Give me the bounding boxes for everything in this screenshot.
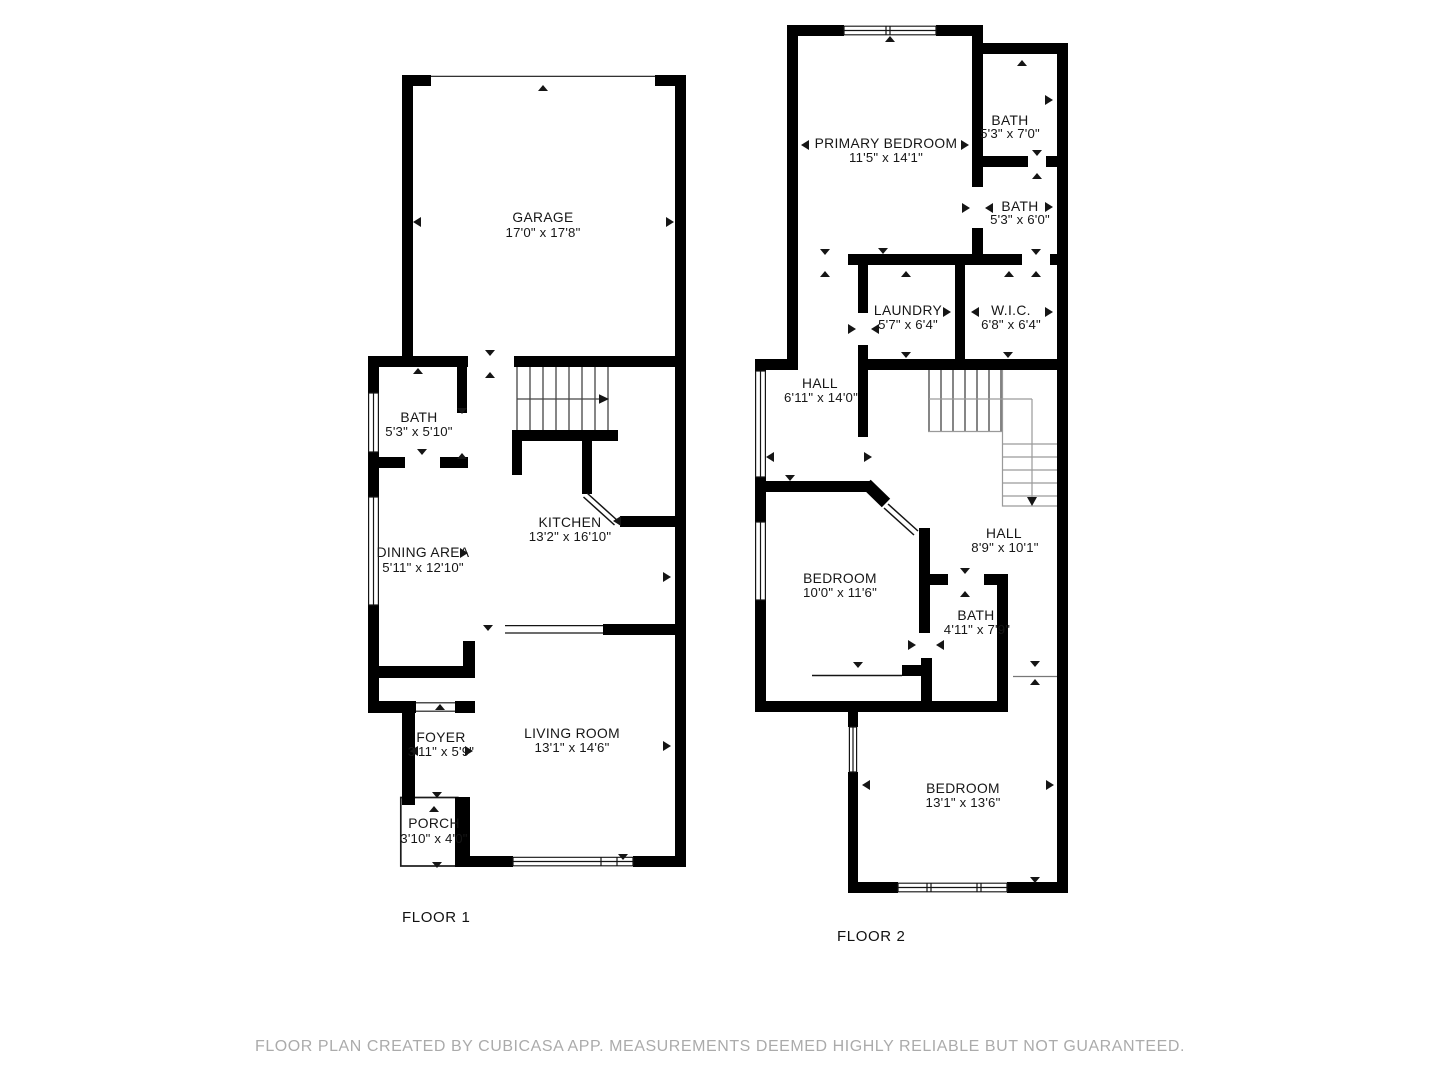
room-dims-bedroom-middle: 10'0" x 11'6"	[803, 585, 877, 600]
bedroom-bottom-side-window	[849, 727, 856, 772]
room-dims-bath-f1: 5'3" x 5'10"	[385, 424, 453, 439]
room-label-foyer: FOYER	[416, 730, 465, 745]
room-dims-wic: 6'8" x 6'4"	[981, 317, 1041, 332]
floor-plan-page: GARAGE 17'0" x 17'8" BATH 5'3" x 5'10" K…	[0, 0, 1440, 1080]
room-dims-bath-lower: 4'11" x 7'9"	[944, 622, 1011, 637]
floor1-stairs	[517, 367, 609, 430]
bedroom-diagonal-door	[884, 504, 918, 535]
room-label-porch: PORCH	[408, 816, 460, 831]
room-dims-foyer: 3'11" x 5'9"	[408, 744, 475, 759]
room-label-wic: W.I.C.	[991, 303, 1031, 318]
room-dims-bath-upper: 5'3" x 7'0"	[980, 126, 1040, 141]
room-label-garage: GARAGE	[512, 210, 573, 225]
room-label-bath-lower: BATH	[957, 608, 994, 623]
kitchen-passthrough	[505, 626, 603, 633]
room-label-laundry: LAUNDRY	[874, 303, 942, 318]
room-dims-bedroom-bottom: 13'1" x 13'6"	[926, 795, 1001, 810]
floor-plan-canvas: GARAGE 17'0" x 17'8" BATH 5'3" x 5'10" K…	[0, 0, 1440, 1080]
room-dims-garage: 17'0" x 17'8"	[506, 225, 581, 240]
floor1-title: FLOOR 1	[402, 909, 470, 926]
room-dims-living-room: 13'1" x 14'6"	[535, 740, 610, 755]
room-dims-primary-bedroom: 11'5" x 14'1"	[849, 150, 923, 165]
room-dims-hall-upper: 6'11" x 14'0"	[784, 390, 858, 405]
floor1-plan: GARAGE 17'0" x 17'8" BATH 5'3" x 5'10" K…	[367, 75, 686, 926]
room-dims-bath-middle: 5'3" x 6'0"	[990, 212, 1050, 227]
room-dims-laundry: 5'7" x 6'4"	[878, 317, 938, 332]
room-label-bath-f1: BATH	[400, 410, 437, 425]
room-dims-porch: 3'10" x 4'0"	[400, 831, 468, 846]
footer-disclaimer: FLOOR PLAN CREATED BY CUBICASA APP. MEAS…	[255, 1038, 1185, 1055]
floor2-plan: PRIMARY BEDROOM 11'5" x 14'1" BATH 5'3" …	[754, 25, 1068, 945]
room-label-hall-upper: HALL	[802, 376, 838, 391]
primary-bedroom-window	[844, 26, 936, 35]
room-label-bedroom-bottom: BEDROOM	[926, 781, 1000, 796]
floor1-room-labels: GARAGE 17'0" x 17'8" BATH 5'3" x 5'10" K…	[377, 210, 620, 846]
room-label-kitchen: KITCHEN	[538, 515, 601, 530]
room-dims-hall-lower: 8'9" x 10'1"	[971, 540, 1039, 555]
floor2-stairs	[928, 370, 1057, 506]
room-dims-kitchen: 13'2" x 16'10"	[529, 529, 612, 544]
stairs-down-arrow	[1027, 497, 1037, 506]
room-label-primary-bedroom: PRIMARY BEDROOM	[815, 136, 958, 151]
room-label-hall-lower: HALL	[986, 526, 1022, 541]
room-label-dining-area: DINING AREA	[377, 545, 470, 560]
room-label-bedroom-middle: BEDROOM	[803, 571, 877, 586]
room-label-living-room: LIVING ROOM	[524, 726, 620, 741]
floor2-title: FLOOR 2	[837, 928, 905, 945]
room-dims-dining-area: 5'11" x 12'10"	[382, 560, 464, 575]
